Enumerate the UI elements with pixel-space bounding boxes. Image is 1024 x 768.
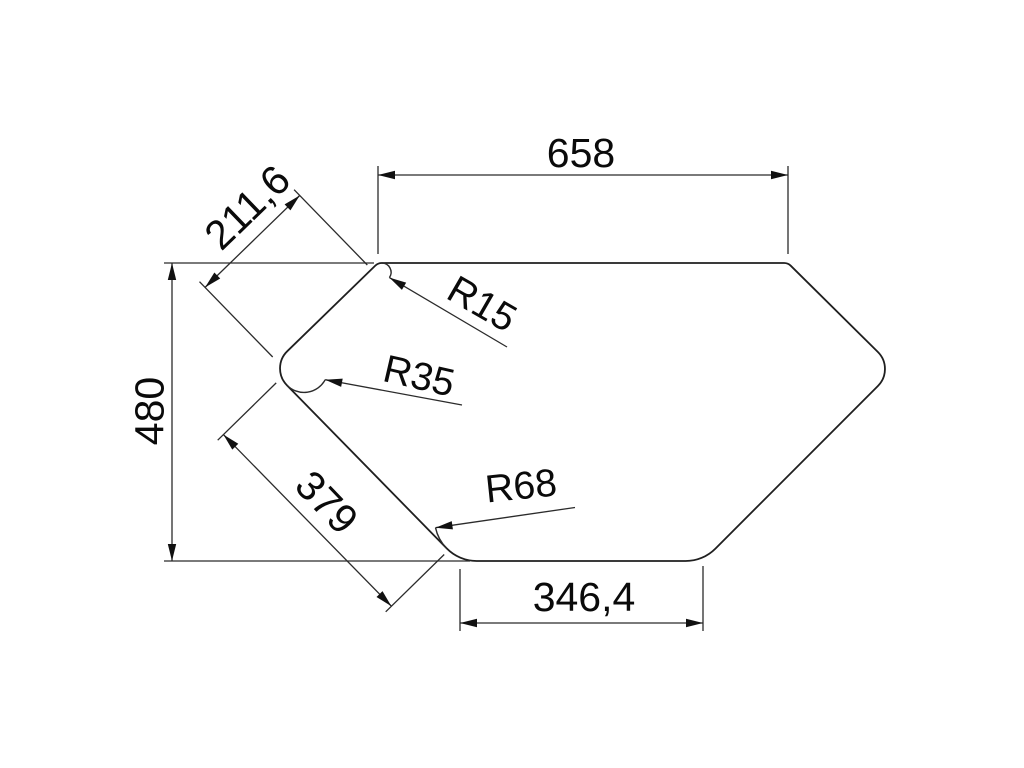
extension-line bbox=[386, 555, 445, 612]
radius-label: R68 bbox=[483, 461, 559, 511]
dimension-bottom-width: 346,4 bbox=[460, 566, 703, 631]
dimension-label: 211,6 bbox=[196, 156, 300, 258]
dimension-line bbox=[223, 435, 391, 607]
drawing-page: 658 211,6 480 379 346,4 bbox=[0, 0, 1024, 768]
technical-drawing-canvas: 658 211,6 480 379 346,4 bbox=[0, 0, 1024, 768]
shape-outline bbox=[280, 263, 885, 561]
dimension-lower-left-edge: 379 bbox=[218, 383, 445, 612]
arrowhead bbox=[324, 376, 342, 387]
extension-line bbox=[218, 383, 277, 440]
radius-label: R15 bbox=[440, 268, 523, 341]
arrowhead bbox=[435, 521, 453, 532]
dimension-label: 658 bbox=[547, 130, 615, 176]
dimension-label: 379 bbox=[286, 462, 367, 543]
radius-label: R35 bbox=[379, 347, 458, 405]
dimension-top-width: 658 bbox=[378, 130, 788, 254]
dimension-label: 346,4 bbox=[533, 574, 636, 620]
extension-line bbox=[200, 282, 273, 357]
arrowhead bbox=[168, 544, 176, 561]
arrowhead bbox=[686, 619, 703, 627]
arrowhead bbox=[460, 619, 477, 627]
dimension-label: 480 bbox=[127, 377, 173, 445]
radius-callout-r15: R15 bbox=[387, 268, 523, 347]
dimension-upper-left-edge: 211,6 bbox=[196, 156, 368, 357]
radius-callout-r35: R35 bbox=[324, 347, 462, 405]
arrowhead bbox=[771, 171, 788, 179]
r15-extension-arc bbox=[382, 263, 391, 278]
radius-callout-r68: R68 bbox=[435, 461, 575, 531]
arrowhead bbox=[168, 263, 176, 280]
leader-line bbox=[436, 508, 576, 528]
extension-line bbox=[294, 190, 367, 265]
dimension-height: 480 bbox=[127, 263, 471, 561]
arrowhead bbox=[378, 171, 395, 179]
